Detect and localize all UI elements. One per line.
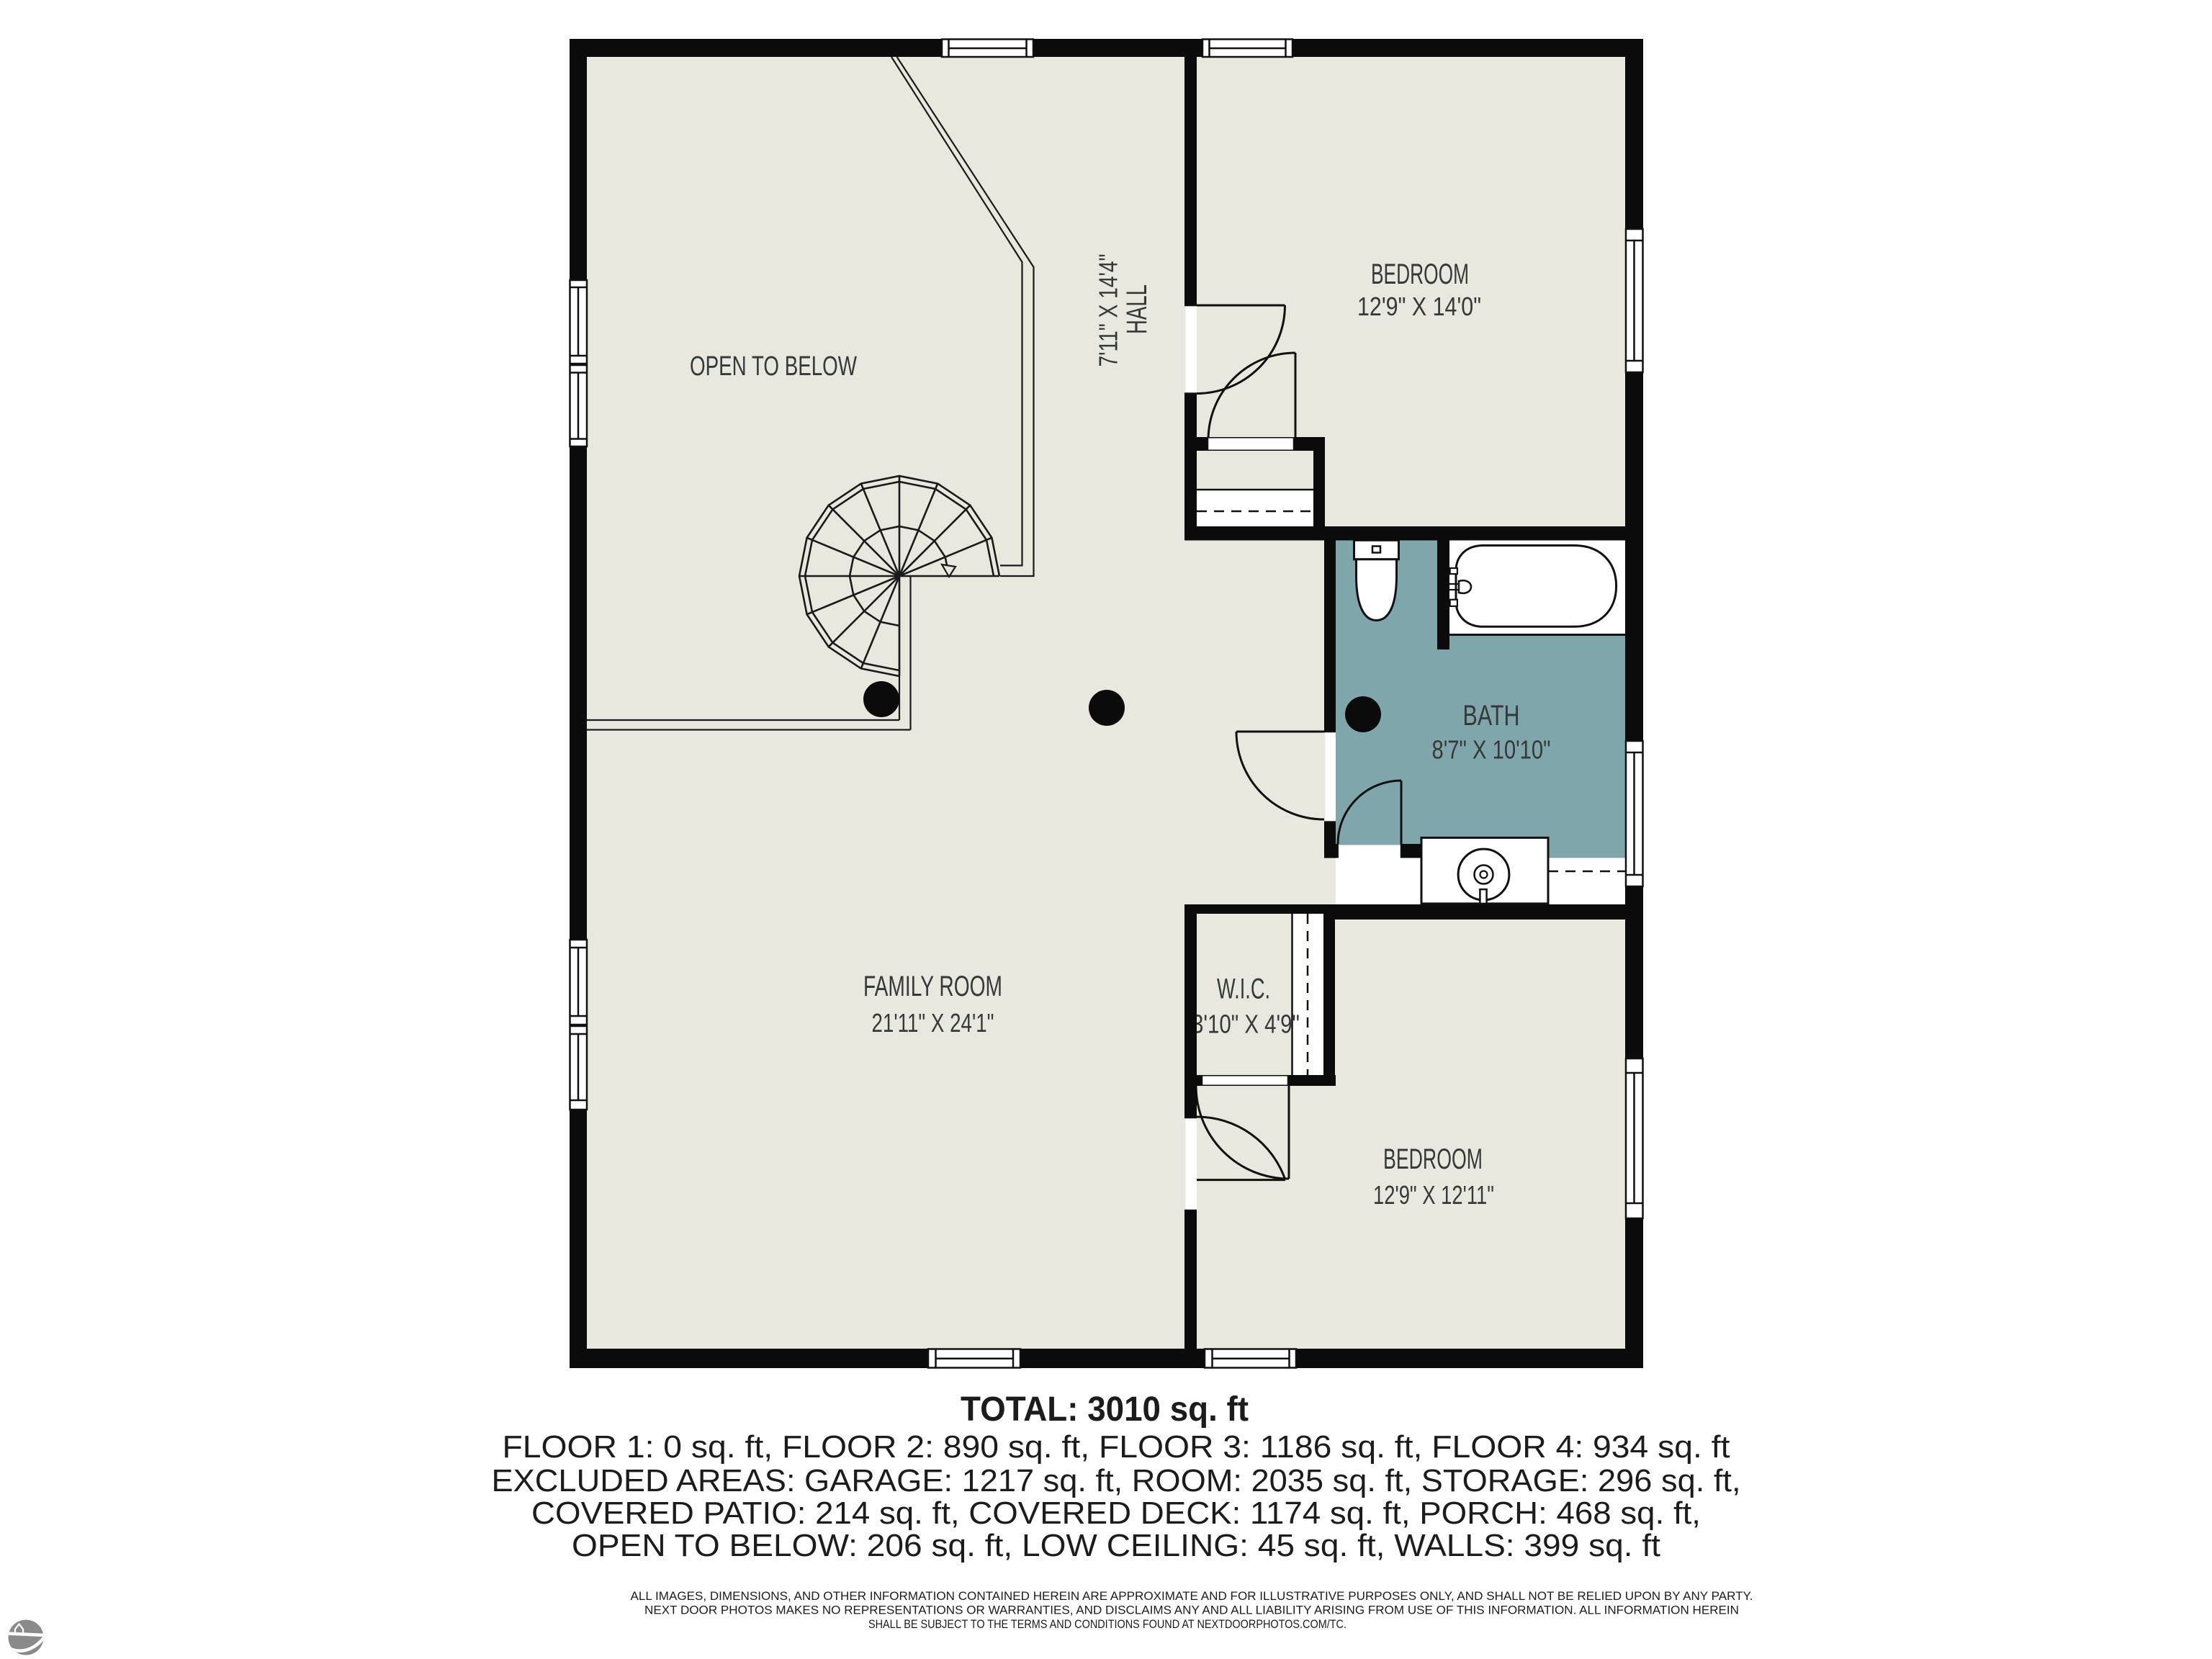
svg-text:OPEN TO BELOW: OPEN TO BELOW [690,351,857,382]
svg-text:COVERED PATIO: 214 sq. ft, COV: COVERED PATIO: 214 sq. ft, COVERED DECK:… [531,1496,1701,1531]
svg-text:FAMILY ROOM: FAMILY ROOM [863,971,1002,1002]
svg-text:W.I.C.: W.I.C. [1217,974,1270,1005]
svg-text:EXCLUDED AREAS: GARAGE: 1217 s: EXCLUDED AREAS: GARAGE: 1217 sq. ft, ROO… [492,1463,1741,1498]
svg-text:7'11" X 14'4": 7'11" X 14'4" [1094,254,1123,367]
svg-text:ALL IMAGES, DIMENSIONS, AND OT: ALL IMAGES, DIMENSIONS, AND OTHER INFORM… [631,1590,1753,1603]
svg-text:FLOOR 1: 0 sq. ft, FLOOR 2: 89: FLOOR 1: 0 sq. ft, FLOOR 2: 890 sq. ft, … [503,1429,1730,1465]
svg-text:12'9" X 14'0": 12'9" X 14'0" [1357,292,1481,321]
svg-text:SHALL BE SUBJECT TO THE TERMS: SHALL BE SUBJECT TO THE TERMS AND CONDIT… [868,1618,1346,1631]
svg-text:HALL: HALL [1121,284,1153,334]
svg-text:NEXT DOOR PHOTOS MAKES NO REPR: NEXT DOOR PHOTOS MAKES NO REPRESENTATION… [644,1604,1739,1617]
svg-text:BEDROOM: BEDROOM [1371,258,1469,290]
svg-text:BATH: BATH [1463,700,1520,732]
svg-text:TOTAL: 3010 sq. ft: TOTAL: 3010 sq. ft [961,1390,1249,1429]
svg-text:OPEN TO BELOW: 206 sq. ft, LOW: OPEN TO BELOW: 206 sq. ft, LOW CEILING: … [572,1528,1660,1563]
svg-text:12'9" X 12'11": 12'9" X 12'11" [1373,1180,1494,1210]
svg-text:8'7" X 10'10": 8'7" X 10'10" [1432,735,1551,765]
svg-text:3'10" X 4'9": 3'10" X 4'9" [1192,1010,1300,1039]
svg-text:BEDROOM: BEDROOM [1383,1143,1483,1175]
svg-text:21'11" X 24'1": 21'11" X 24'1" [872,1008,994,1038]
